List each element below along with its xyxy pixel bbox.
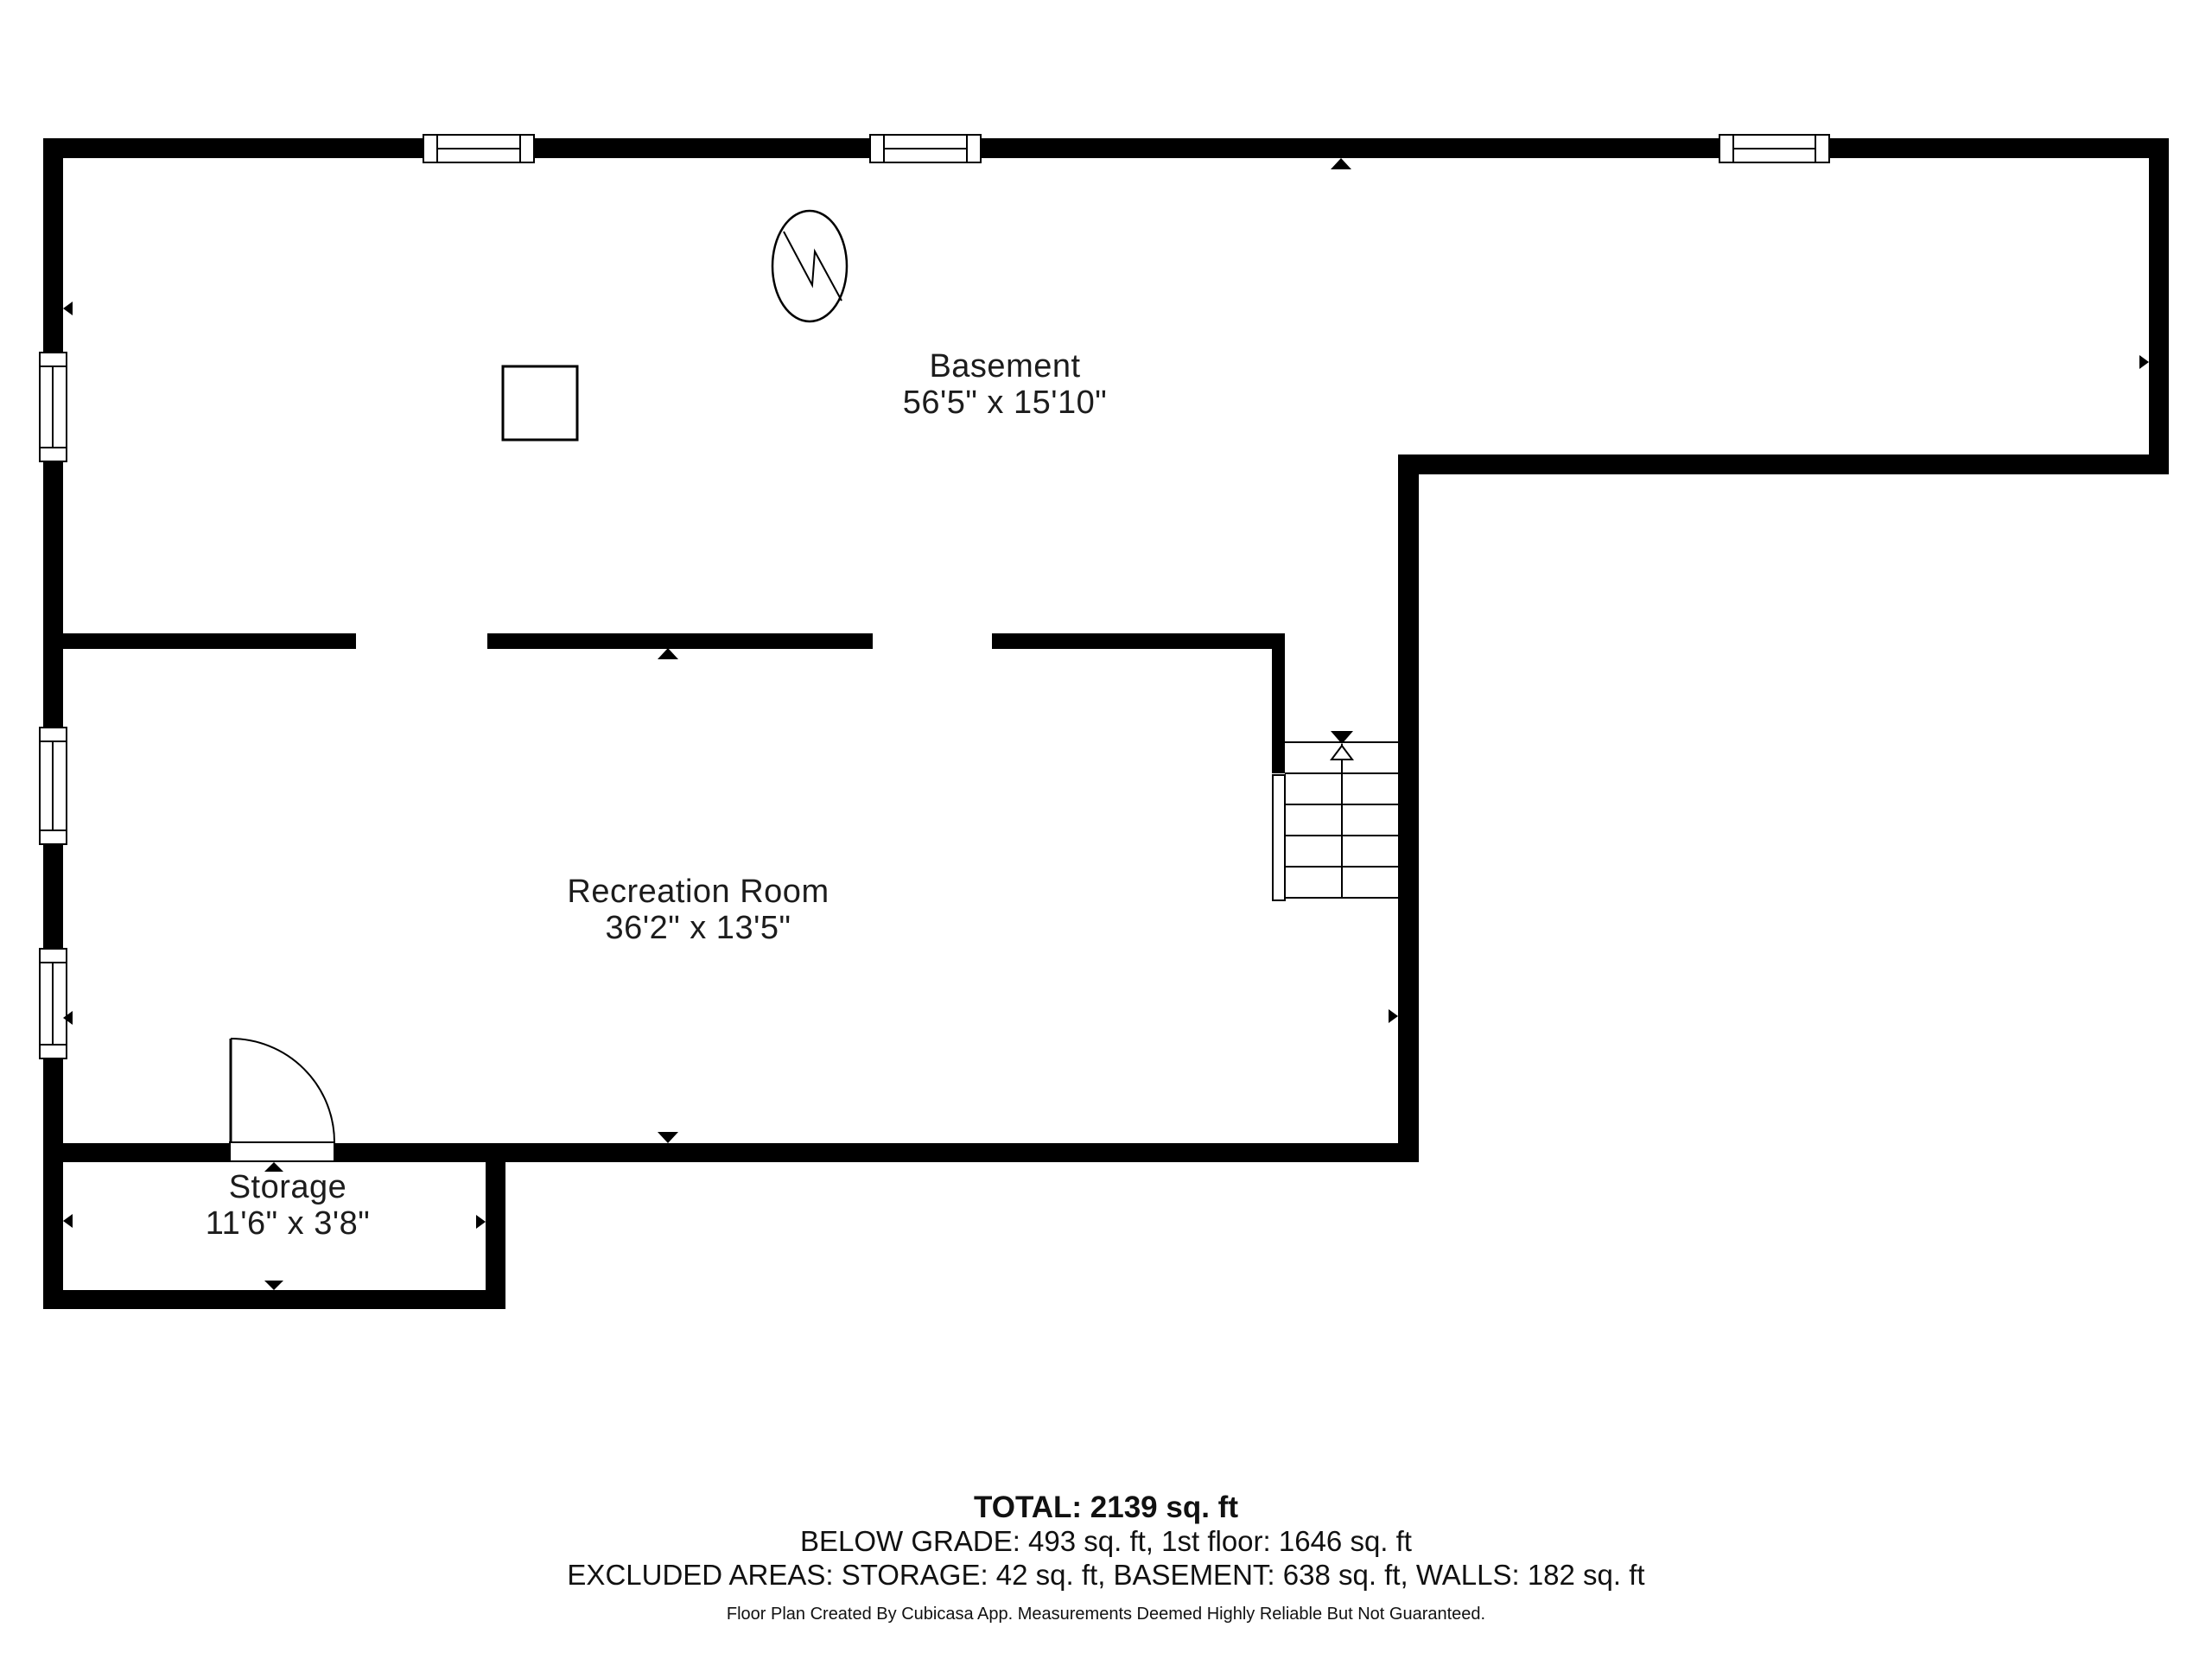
room-dimensions: 36'2" x 13'5": [439, 910, 957, 946]
arrow-down-icon: [264, 1281, 283, 1290]
wall-left: [43, 138, 63, 1309]
wall-recroom-bottom-left: [63, 1143, 230, 1162]
door-arc: [231, 1039, 334, 1142]
area-summary: TOTAL: 2139 sq. ft BELOW GRADE: 493 sq. …: [0, 1491, 2212, 1623]
arrow-right-icon: [2139, 355, 2149, 369]
wall-notch-bottom: [1398, 454, 2169, 474]
room-name: Recreation Room: [439, 874, 957, 910]
water-heater-icon: [772, 211, 847, 321]
wall-mid-vertical: [1398, 454, 1419, 1162]
room-dimensions: 56'5" x 15'10": [746, 385, 1264, 421]
arrow-right-icon: [1389, 1009, 1398, 1023]
wall-divider-seg1: [63, 633, 356, 649]
room-label-storage: Storage 11'6" x 3'8": [72, 1169, 504, 1242]
room-label-recreation-room: Recreation Room 36'2" x 13'5": [439, 874, 957, 946]
wall-stair-stub: [1272, 633, 1285, 773]
stair-stringer: [1273, 775, 1285, 900]
room-name: Storage: [72, 1169, 504, 1205]
arrow-up-icon: [1331, 158, 1351, 169]
wall-divider-seg3: [992, 633, 1285, 649]
floor-plan-page: { "page": { "background": "#ffffff", "wa…: [0, 0, 2212, 1659]
wall-recroom-bottom-right: [334, 1143, 1419, 1162]
window-icon: [40, 353, 67, 461]
wall-marker-arrows: [63, 158, 2149, 1290]
room-dimensions: 11'6" x 3'8": [72, 1205, 504, 1242]
arrow-left-icon: [63, 302, 73, 315]
room-name: Basement: [746, 348, 1264, 385]
walls: [43, 138, 2169, 1309]
door-swing: [230, 1039, 334, 1164]
window-icon: [40, 949, 67, 1058]
floor-plan-canvas: [0, 0, 2212, 1659]
below-grade-area: BELOW GRADE: 493 sq. ft, 1st floor: 1646…: [0, 1524, 2212, 1558]
window-icon: [40, 728, 67, 844]
wall-storage-bottom: [43, 1290, 505, 1309]
room-label-basement: Basement 56'5" x 15'10": [746, 348, 1264, 421]
stair-arrow-outline-icon: [1332, 746, 1352, 760]
wall-top: [43, 138, 2169, 158]
wall-divider-seg2: [487, 633, 873, 649]
column-icon: [503, 366, 577, 440]
window-icon: [1719, 135, 1829, 162]
staircase: [1273, 731, 1398, 900]
arrow-down-icon: [658, 1132, 678, 1143]
window-icon: [870, 135, 981, 162]
arrow-up-icon: [658, 648, 678, 659]
wall-right-outer: [2149, 138, 2169, 474]
total-area: TOTAL: 2139 sq. ft: [0, 1491, 2212, 1524]
disclaimer-text: Floor Plan Created By Cubicasa App. Meas…: [0, 1605, 2212, 1623]
door-threshold: [230, 1142, 334, 1161]
excluded-areas: EXCLUDED AREAS: STORAGE: 42 sq. ft, BASE…: [0, 1558, 2212, 1592]
window-icon: [423, 135, 534, 162]
